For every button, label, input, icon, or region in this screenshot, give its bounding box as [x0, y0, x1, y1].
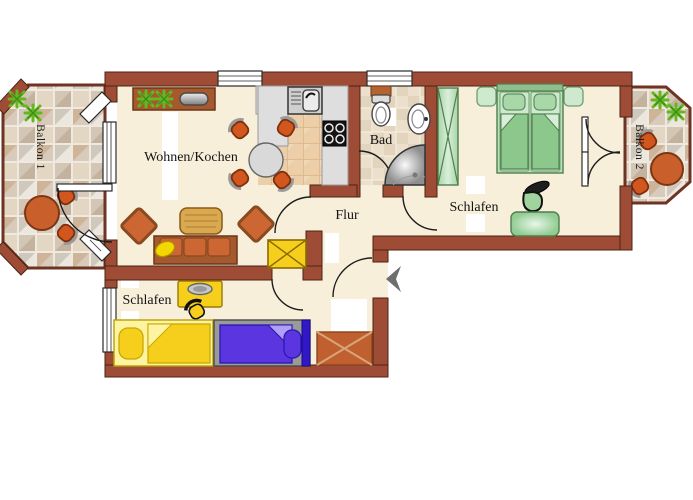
label-hall: Flur: [335, 208, 359, 223]
pillow: [119, 328, 143, 359]
pillow: [284, 330, 301, 358]
pillow: [503, 94, 525, 110]
wall-hall-a: [310, 185, 357, 197]
toilet: [371, 86, 391, 126]
floor-highlight: [466, 214, 485, 232]
dining-table: [249, 143, 283, 177]
sofa: [153, 236, 237, 264]
wall-living-bedroom: [105, 266, 272, 280]
plant-icon: [668, 104, 684, 120]
tv: [180, 93, 208, 105]
entrance-arrow-icon: [386, 266, 401, 292]
label-balcony-2: Balkon 2: [633, 124, 645, 170]
label-bedroom-second: Schlafen: [123, 293, 172, 308]
wardrobe-yellow: [268, 240, 306, 268]
wall-bottom: [105, 365, 388, 377]
plant-icon: [156, 91, 172, 107]
stove: [323, 121, 346, 146]
bed-purple: [214, 320, 310, 366]
counter-left: [258, 86, 288, 146]
bath-sink: [408, 104, 430, 134]
pillow: [534, 94, 556, 110]
wall-south-right-wing: [373, 236, 632, 250]
double-bed: [497, 84, 563, 173]
entrance-threshold: [373, 262, 388, 298]
kitchen-sink: [288, 87, 322, 114]
entrance-doormat: [331, 299, 367, 331]
plant-icon: [652, 92, 668, 108]
wall-entrance-upper: [373, 250, 388, 262]
wall-kitchen-bath: [348, 86, 360, 197]
plant-icon: [25, 105, 41, 121]
floor-highlight: [325, 233, 339, 263]
floorplan-page: Wohnen/Kochen Bad Flur Schlafen Schlafen…: [0, 0, 693, 500]
coffee-table: [180, 208, 222, 234]
wall-hall-b: [383, 185, 403, 197]
plant-icon: [138, 91, 154, 107]
label-balcony-1: Balkon 1: [34, 124, 46, 170]
bed-yellow: [114, 320, 213, 366]
window-living-west: [103, 122, 116, 183]
balcony-2-table: [651, 153, 683, 185]
wall-right-upper: [620, 86, 632, 117]
wall-right-lower: [620, 186, 632, 250]
label-bath: Bad: [370, 133, 393, 148]
wardrobe-entrance: [317, 332, 372, 365]
balcony-1-table: [25, 196, 59, 230]
wardrobe-green: [438, 88, 458, 185]
label-bedroom-main: Schlafen: [450, 200, 499, 215]
window-bath: [367, 71, 412, 86]
floor-highlight: [466, 176, 485, 194]
wall-entrance-lower: [373, 298, 388, 365]
nightstand: [564, 87, 583, 106]
desk: [178, 281, 222, 307]
headboard: [302, 320, 310, 366]
floorplan-canvas: Wohnen/Kochen Bad Flur Schlafen Schlafen…: [0, 0, 693, 500]
wall-bath-bedroom: [425, 86, 437, 197]
nightstand: [477, 87, 496, 106]
bench: [511, 212, 559, 236]
label-living: Wohnen/Kochen: [144, 150, 238, 165]
plant-icon: [9, 91, 25, 107]
window-living: [218, 71, 262, 86]
